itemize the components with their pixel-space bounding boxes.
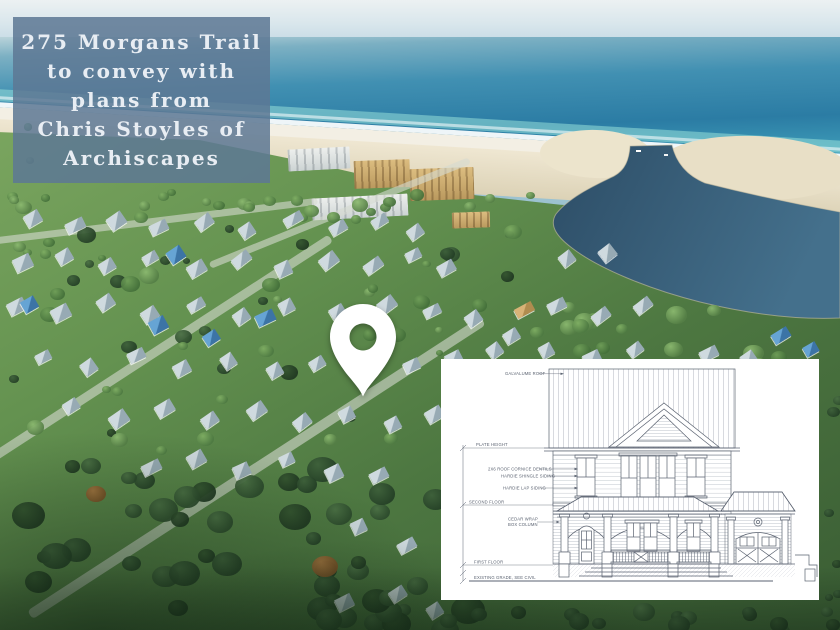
tree (668, 616, 689, 630)
house (172, 359, 192, 378)
house (502, 327, 521, 345)
tree (569, 613, 589, 630)
house (626, 341, 645, 359)
house (396, 536, 417, 554)
tree (501, 271, 514, 282)
tree (351, 556, 366, 568)
tree (111, 433, 128, 447)
tree (158, 192, 169, 201)
house (464, 309, 484, 328)
tree (262, 278, 279, 292)
tree (306, 532, 321, 544)
house (154, 398, 176, 419)
tree (368, 284, 378, 292)
tree (168, 600, 188, 616)
house (34, 349, 52, 365)
tree (171, 512, 189, 527)
tree (707, 305, 721, 316)
house (514, 301, 535, 319)
tree (27, 420, 44, 434)
house (292, 412, 313, 432)
house (79, 357, 99, 377)
front-elevation-drawing: GALVALUME ROOF PLATE HEIGHT 2X6 ROOF COR… (441, 359, 819, 600)
tree (216, 395, 227, 404)
tree (326, 503, 353, 525)
house (200, 411, 220, 430)
tree (40, 249, 51, 258)
tree (826, 619, 840, 630)
caption-line: plans from (71, 86, 212, 115)
tree (81, 458, 101, 474)
tree (352, 198, 368, 211)
tree (102, 386, 111, 394)
tree (742, 607, 756, 618)
house (274, 259, 294, 278)
tree (464, 202, 475, 211)
tree (504, 225, 522, 240)
tree (65, 460, 80, 473)
house (12, 253, 34, 273)
caption-line: Archiscapes (63, 144, 220, 173)
house (278, 451, 295, 467)
house (802, 341, 819, 357)
house (633, 296, 654, 315)
drawing-callouts: GALVALUME ROOF PLATE HEIGHT 2X6 ROOF COR… (469, 371, 555, 580)
tree (436, 350, 443, 356)
tree (384, 433, 397, 444)
tree (258, 345, 274, 358)
tree (169, 561, 200, 587)
tree (827, 407, 839, 417)
location-pin-icon (323, 301, 403, 401)
tree (297, 476, 317, 492)
caption-line: to convey with (47, 57, 236, 86)
house (187, 296, 206, 313)
tree (207, 511, 234, 533)
tree (174, 486, 201, 508)
house (149, 219, 170, 237)
tree (291, 195, 304, 205)
house (350, 518, 369, 536)
house (384, 416, 402, 433)
tree (370, 504, 389, 520)
tree (156, 446, 167, 455)
tree (134, 212, 148, 224)
house (283, 210, 305, 228)
tree (178, 342, 188, 350)
tree (824, 509, 833, 517)
tree (369, 483, 395, 504)
caption-overlay: 275 Morgans Trail to convey with plans f… (13, 17, 270, 183)
tree (821, 607, 833, 617)
tree (67, 275, 80, 286)
architectural-plan-inset: GALVALUME ROOF PLATE HEIGHT 2X6 ROOF COR… (441, 359, 819, 600)
caption-line: 275 Morgans Trail (21, 28, 262, 57)
listing-photo-collage: GALVALUME ROOF PLATE HEIGHT 2X6 ROOF COR… (0, 0, 840, 630)
tree (12, 502, 45, 529)
house (485, 341, 504, 360)
house (597, 243, 618, 263)
callout-column-1: CEDAR WRAP (508, 517, 538, 522)
caption-line: Chris Stoyles of (38, 115, 246, 144)
tree (122, 556, 140, 571)
tree (485, 194, 495, 202)
tree (243, 203, 255, 213)
tree (304, 205, 319, 217)
callout-second-floor: SECOND FLOOR (469, 500, 504, 505)
callout-roof: GALVALUME ROOF (505, 371, 546, 376)
callout-column-2: BOX COLUMN (508, 522, 538, 527)
house (254, 309, 276, 328)
house (246, 400, 268, 421)
tree (316, 609, 343, 630)
tree (422, 261, 430, 268)
tree (40, 543, 72, 569)
house (62, 397, 81, 416)
tree (183, 258, 190, 264)
tree (263, 196, 276, 206)
house (232, 307, 252, 326)
house (363, 256, 385, 276)
tree (440, 614, 456, 627)
tree (139, 201, 151, 211)
tree (43, 238, 55, 248)
house (538, 342, 556, 360)
house (55, 247, 75, 266)
tree (212, 552, 242, 577)
tree (279, 504, 311, 530)
tree (616, 324, 629, 334)
tree (41, 194, 50, 201)
house (238, 221, 257, 240)
tree (407, 577, 429, 595)
tree (526, 192, 535, 199)
callout-first-floor: FIRST FLOOR (474, 560, 503, 565)
tree (213, 201, 225, 210)
tree (25, 571, 52, 593)
tree (121, 276, 140, 291)
tree (383, 197, 396, 207)
house (318, 250, 340, 271)
tree (50, 288, 65, 300)
tree (366, 208, 376, 216)
callout-grade: EXISTING GRADE, SEE CIVIL (474, 575, 536, 580)
tree (511, 606, 527, 619)
house (108, 408, 131, 429)
callout-plate-height: PLATE HEIGHT (476, 442, 508, 447)
tree (572, 319, 589, 333)
house (194, 212, 215, 231)
tree (296, 239, 309, 249)
house (405, 247, 423, 263)
house (141, 250, 159, 266)
house (106, 210, 128, 231)
tree (112, 387, 124, 397)
callout-shingle-siding: HARDIE SHINGLE SIDING (501, 474, 555, 479)
tree (86, 486, 106, 502)
house (402, 357, 421, 374)
house (770, 326, 791, 345)
tree (833, 590, 840, 598)
tree (324, 434, 337, 445)
house (406, 223, 425, 241)
tree (225, 225, 234, 233)
house (558, 249, 577, 268)
house (231, 249, 252, 269)
tree (351, 215, 361, 224)
tree (471, 608, 487, 621)
tree (832, 560, 840, 568)
tree (770, 617, 788, 630)
house (96, 293, 117, 313)
tree (85, 260, 95, 268)
tree (833, 396, 840, 406)
tree (10, 197, 19, 204)
callout-dentils: 2X6 ROOF CORNICE DENTILS (488, 467, 552, 472)
tree (666, 306, 687, 324)
tree (633, 603, 654, 620)
tree (435, 327, 443, 333)
tree (825, 594, 833, 601)
house (369, 467, 390, 485)
tree (197, 432, 214, 446)
tree (121, 472, 136, 485)
tree (664, 342, 683, 357)
house (186, 449, 207, 469)
callout-lap-siding: HARDIE LAP SIDING (503, 486, 546, 491)
tree (410, 189, 424, 201)
tree (258, 297, 267, 305)
tree (202, 198, 212, 206)
tree (139, 267, 159, 283)
tree (9, 375, 18, 383)
tree (125, 504, 142, 518)
tree (530, 327, 544, 339)
tree (592, 618, 606, 630)
